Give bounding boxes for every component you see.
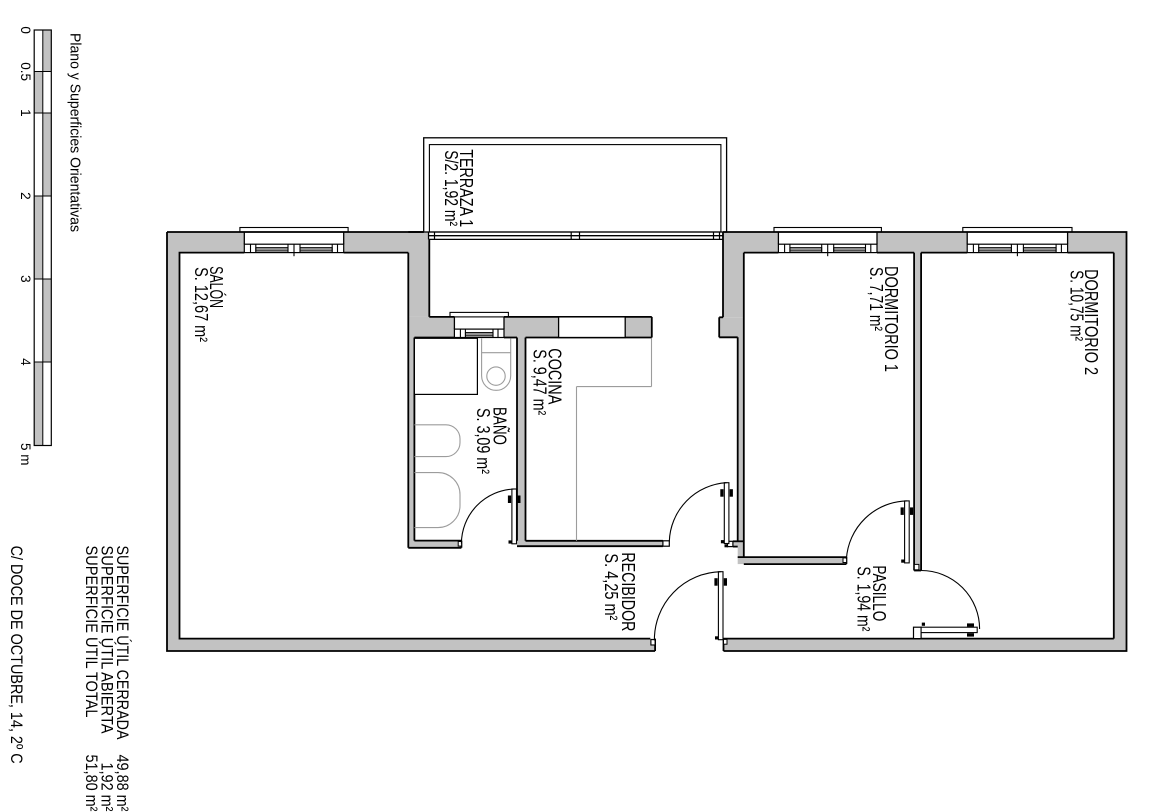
svg-text:Plano y Superficies Orientativ: Plano y Superficies Orientativas [67, 33, 84, 232]
svg-text:C/ DOCE DE OCTUBRE, 14, 2º C: C/ DOCE DE OCTUBRE, 14, 2º C [7, 546, 25, 764]
svg-text:S. 4,25 m²: S. 4,25 m² [601, 553, 621, 620]
svg-text:3: 3 [18, 275, 33, 283]
svg-text:0.5: 0.5 [18, 62, 33, 81]
svg-text:1: 1 [18, 109, 33, 117]
svg-text:51,80 m²: 51,80 m² [82, 755, 100, 812]
svg-text:5 m: 5 m [18, 443, 33, 466]
svg-text:4: 4 [18, 358, 33, 366]
svg-text:S. 9,47 m²: S. 9,47 m² [529, 349, 549, 415]
svg-text:S. 10,75 m²: S. 10,75 m² [1067, 270, 1087, 341]
svg-text:S. 3,09 m²: S. 3,09 m² [473, 408, 493, 474]
svg-text:S. 7,71 m²: S. 7,71 m² [866, 267, 886, 331]
svg-text:S. 12,67 m²: S. 12,67 m² [191, 267, 211, 342]
svg-text:0: 0 [18, 26, 33, 34]
svg-text:S/2. 1,92 m²: S/2. 1,92 m² [441, 150, 461, 226]
svg-text:S. 1,94 m²: S. 1,94 m² [854, 566, 874, 631]
svg-text:2: 2 [18, 192, 33, 200]
svg-text:SUPERFICIE ÚTIL TOTAL: SUPERFICIE ÚTIL TOTAL [82, 546, 101, 718]
